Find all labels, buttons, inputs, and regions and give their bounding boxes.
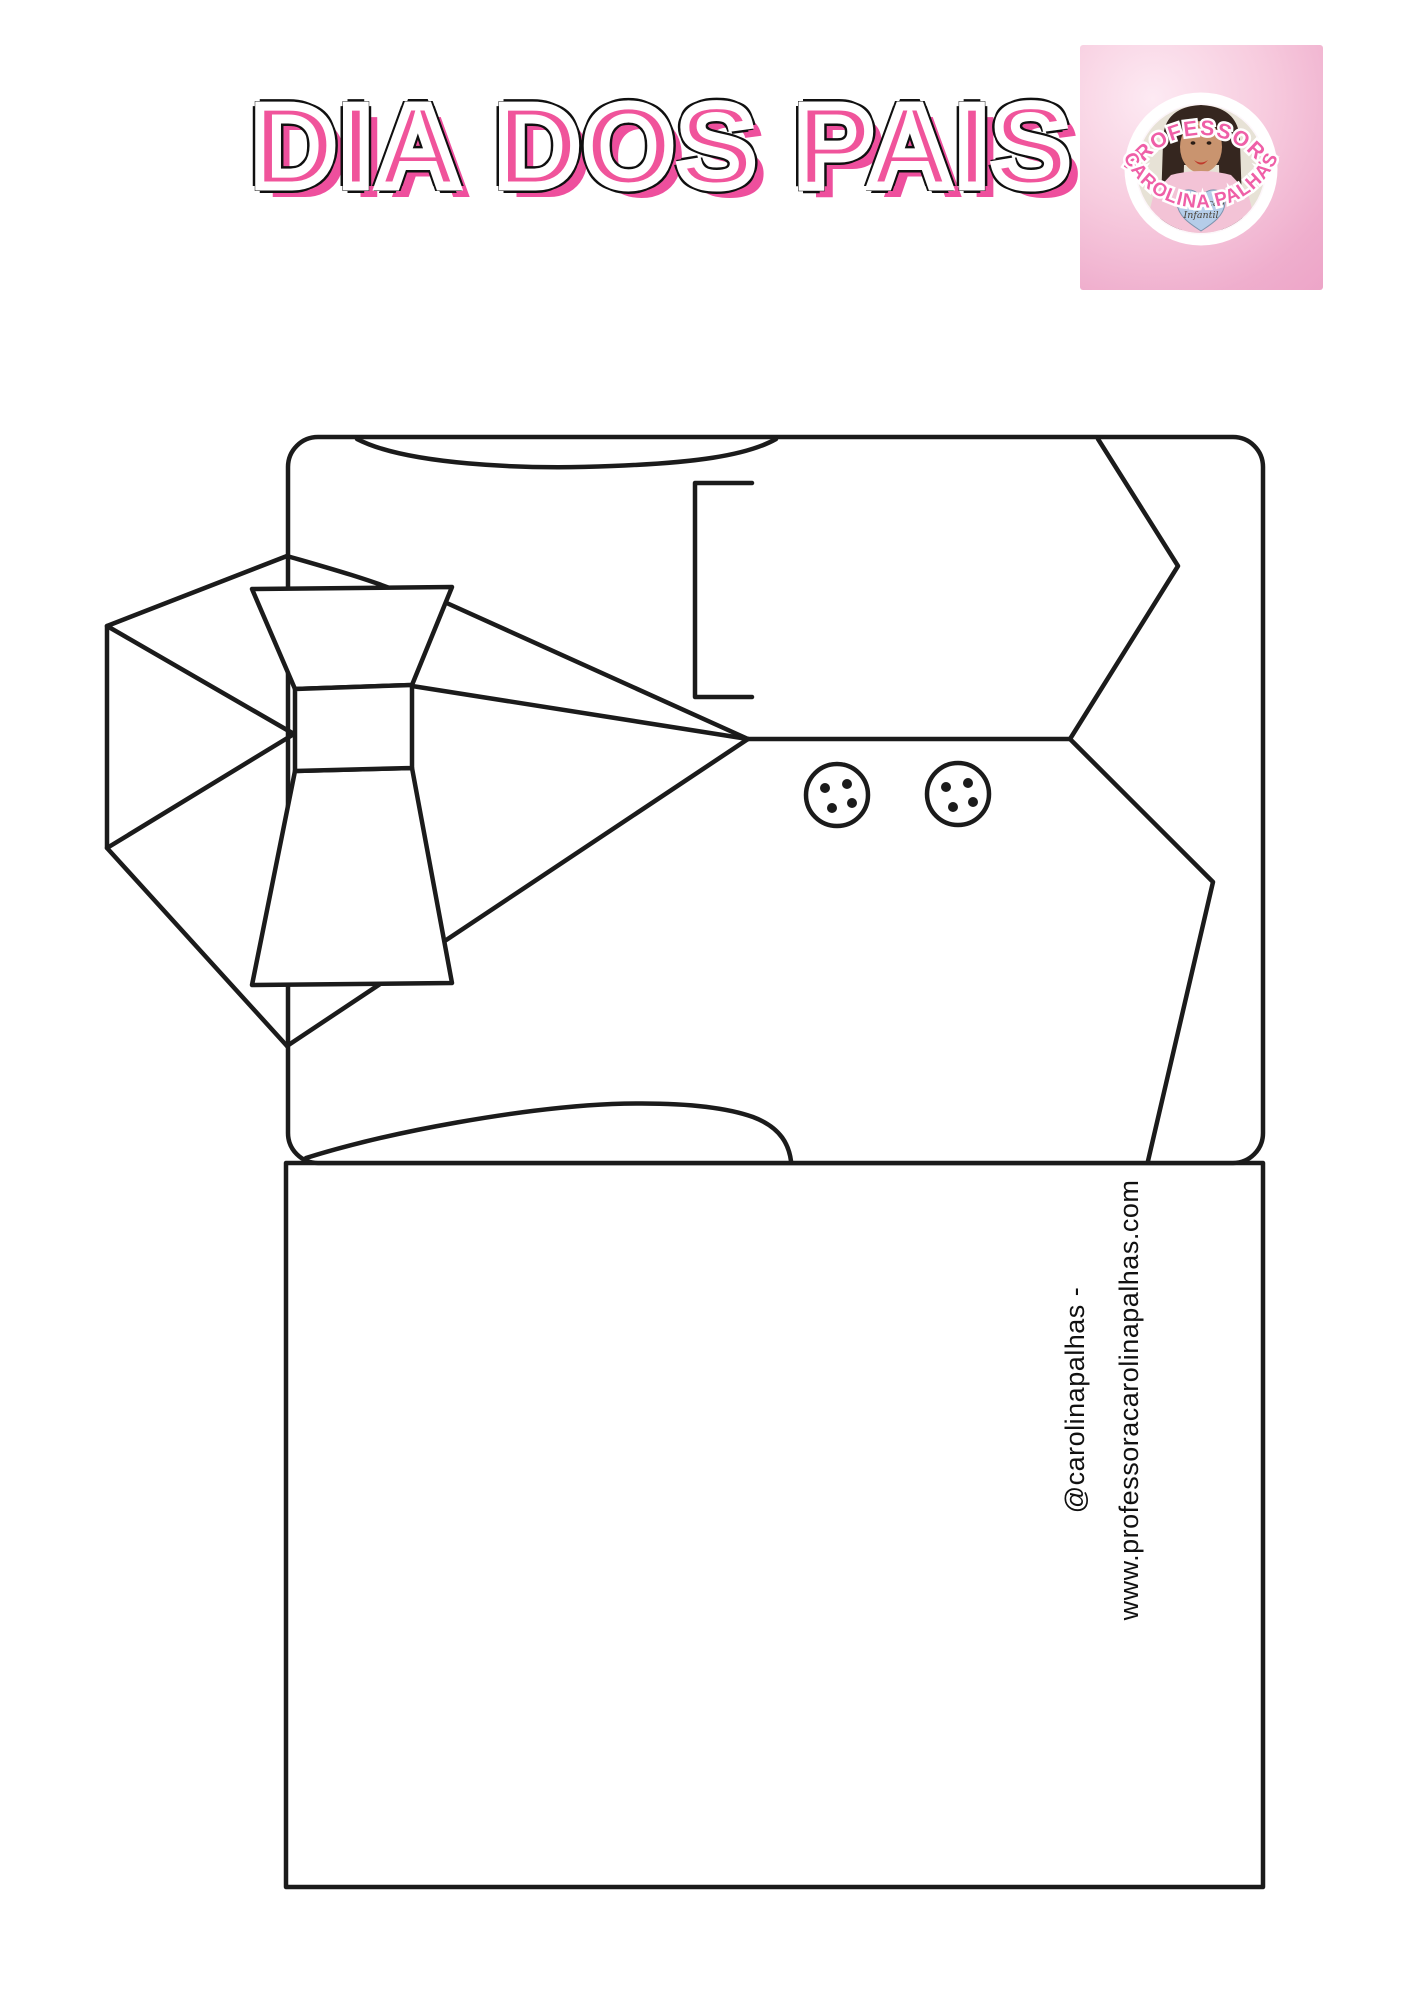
- collar-fold-top: [107, 626, 294, 734]
- vest-button-right: [927, 763, 989, 825]
- collar-fold-bottom: [107, 734, 294, 848]
- vest-button-left: [806, 764, 868, 826]
- watermark-credit: @carolinapalhas - www.professoracarolina…: [1048, 1050, 1264, 1750]
- watermark-handle: @carolinapalhas -: [1048, 1050, 1102, 1750]
- bow-tie-knot: [295, 685, 412, 771]
- watermark-url: www.professoracarolinapalhas.com: [1102, 1050, 1156, 1750]
